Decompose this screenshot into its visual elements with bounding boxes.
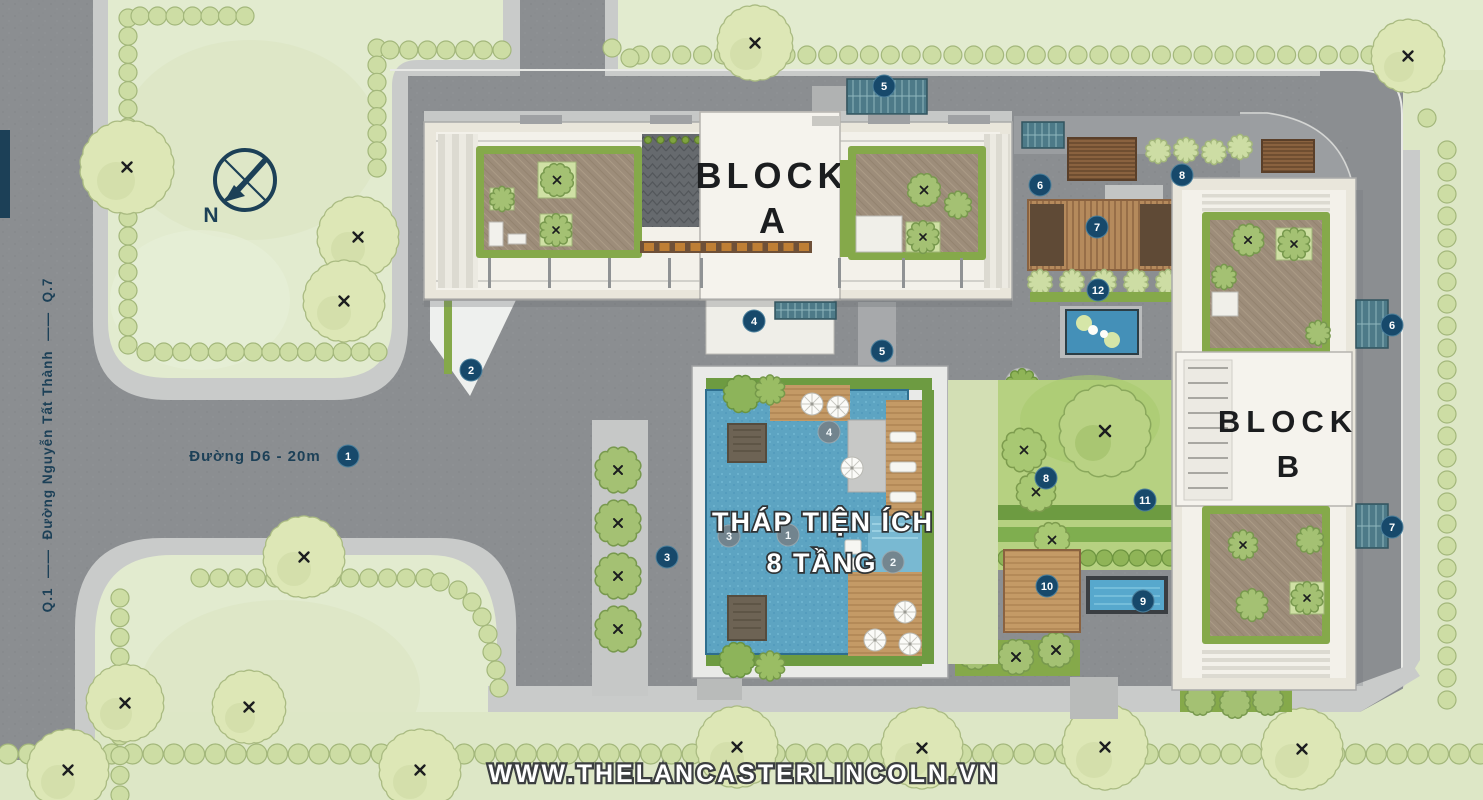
svg-text:BLOCK: BLOCK: [696, 155, 849, 196]
svg-text:Q.1 —— Đường Nguyễn Tất Thàn: Q.1 —— Đường Nguyễn Tất Thành —— Q.7: [40, 278, 55, 613]
svg-text:BLOCK: BLOCK: [1218, 404, 1358, 439]
svg-text:5: 5: [881, 81, 887, 93]
svg-text:Đường D6 - 20m: Đường D6 - 20m: [189, 448, 320, 465]
svg-text:6: 6: [1389, 320, 1395, 332]
svg-text:5: 5: [879, 346, 885, 358]
svg-text:8 TẦNG: 8 TẦNG: [766, 547, 877, 578]
svg-text:7: 7: [1094, 222, 1100, 234]
svg-text:8: 8: [1179, 170, 1185, 182]
svg-text:N: N: [203, 204, 218, 227]
svg-text:11: 11: [1139, 495, 1151, 507]
svg-text:10: 10: [1041, 581, 1053, 593]
svg-text:4: 4: [751, 316, 758, 328]
svg-text:2: 2: [468, 365, 474, 377]
svg-text:8: 8: [1043, 473, 1049, 485]
svg-text:6: 6: [1037, 180, 1043, 192]
svg-text:7: 7: [1389, 522, 1395, 534]
svg-text:A: A: [759, 200, 785, 241]
svg-text:1: 1: [345, 451, 351, 463]
svg-text:THÁP TIỆN ÍCH: THÁP TIỆN ÍCH: [712, 506, 934, 537]
svg-text:3: 3: [664, 552, 670, 564]
svg-text:WWW.THELANCASTERLINCOLN.VN: WWW.THELANCASTERLINCOLN.VN: [488, 760, 999, 788]
svg-text:12: 12: [1092, 285, 1104, 297]
svg-text:4: 4: [826, 427, 833, 439]
svg-text:B: B: [1277, 449, 1299, 484]
svg-text:2: 2: [890, 557, 896, 569]
svg-text:9: 9: [1140, 596, 1146, 608]
